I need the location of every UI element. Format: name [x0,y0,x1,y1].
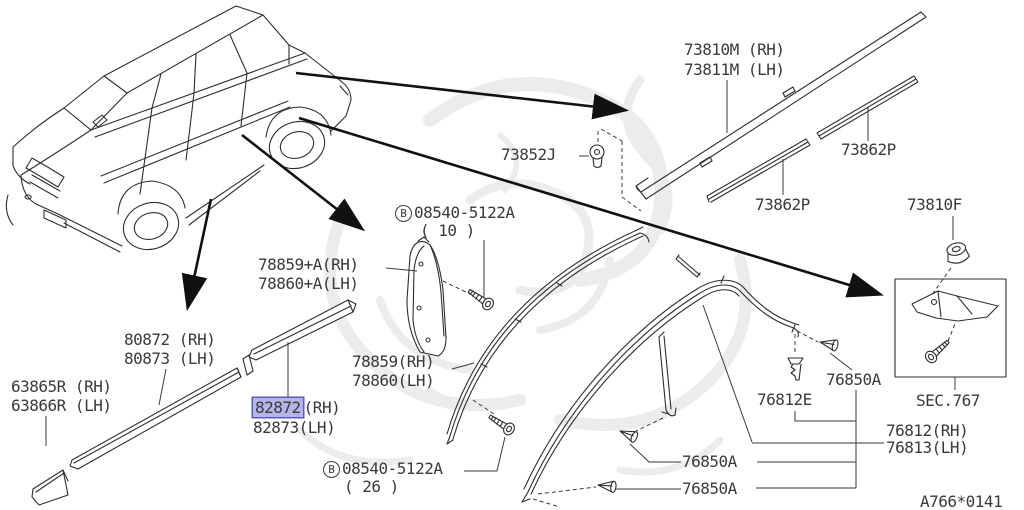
label-connectors [616,305,884,489]
screw-bottom-icon [486,411,516,437]
label-63866r[interactable]: 63866R (LH) [11,398,111,415]
label-screw-bottom-qty: ( 26 ) [344,479,399,496]
label-78860[interactable]: 78860(LH) [352,373,434,390]
label-76813[interactable]: 76813(LH) [886,440,968,457]
label-73862p-lower[interactable]: 73862P [755,197,810,214]
label-76850a-mid[interactable]: 76850A [682,454,737,471]
stone-guard-63865r [32,470,68,505]
label-73810f[interactable]: 73810F [907,197,962,214]
label-80873[interactable]: 80873 (LH) [124,351,215,368]
label-63865r[interactable]: 63865R (RH) [11,379,111,396]
circled-b-icon: B [395,205,412,222]
diagram-artwork [0,0,1024,510]
parts-catalog-diagram: 73810M (RH) 73811M (LH) 73852J 73862P 73… [0,0,1024,510]
highlight-82872: 82872 [253,398,303,417]
label-73862p-upper[interactable]: 73862P [841,142,896,159]
label-73810m[interactable]: 73810M (RH) [684,42,784,59]
label-80872[interactable]: 80872 (RH) [124,332,215,349]
label-76850a-bottom[interactable]: 76850A [682,481,737,498]
roof-clip-73852j-icon [590,145,604,168]
label-screw-bottom[interactable]: B08540-5122A [323,461,442,478]
label-screw-top-qty: ( 10 ) [420,223,475,240]
roof-strip-73862p-lower [707,139,810,202]
pillar-molding-78859a [407,237,446,356]
label-drawing-ref: A766*0141 [920,494,1002,510]
screw-bottom-leader [464,437,505,471]
sec767-box [895,279,1006,377]
screw-top-dash [443,281,472,295]
label-76812e[interactable]: 76812E [757,392,812,409]
label-76850a-top[interactable]: 76850A [826,372,881,389]
label-73811m[interactable]: 73811M (LH) [684,62,784,79]
arrow-to-pillar-molding [242,135,361,228]
label-73852j[interactable]: 73852J [501,147,556,164]
label-sec767[interactable]: SEC.767 [916,393,980,410]
car-illustration [6,6,351,257]
clip-76812e-icon [788,358,803,380]
label-82873[interactable]: 82873(LH) [253,420,335,437]
arrow-to-body-molding [188,199,211,306]
clip-76850a-top-icon [819,336,839,351]
clip-76850a-bottom-icon [597,479,616,493]
grommet-73810f-icon [944,241,970,266]
circled-b-icon: B [323,461,340,478]
label-screw-top[interactable]: B08540-5122A [395,205,514,222]
screw-top-icon [466,286,496,312]
label-78859[interactable]: 78859(RH) [352,354,434,371]
label-78859a[interactable]: 78859+A(RH) [258,257,358,274]
label-82872-selected[interactable]: 82872(RH) [255,400,340,417]
label-78860a[interactable]: 78860+A(LH) [258,276,358,293]
